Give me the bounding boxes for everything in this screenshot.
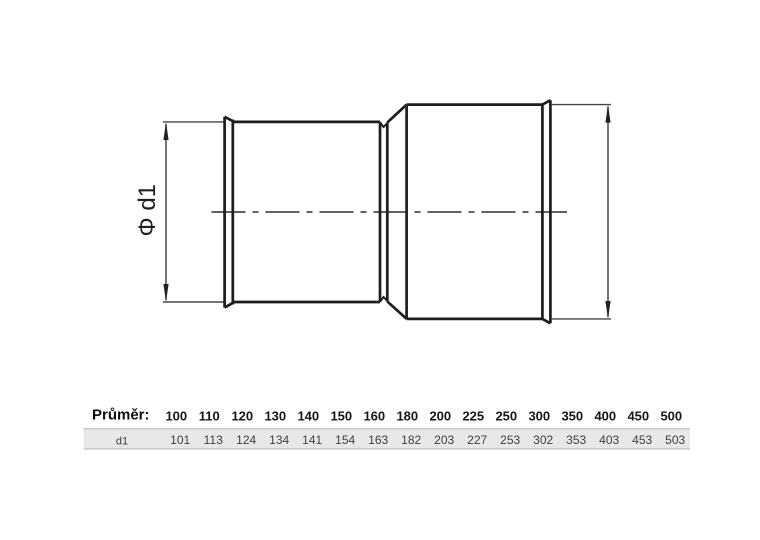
svg-text:160: 160: [363, 408, 385, 423]
svg-text:503: 503: [665, 433, 685, 447]
svg-text:140: 140: [297, 408, 319, 423]
svg-text:Φ d1: Φ d1: [134, 184, 161, 237]
svg-text:453: 453: [632, 433, 652, 447]
svg-text:403: 403: [599, 433, 619, 447]
svg-text:134: 134: [269, 433, 289, 447]
svg-text:163: 163: [368, 433, 388, 447]
svg-text:227: 227: [467, 433, 487, 447]
svg-text:120: 120: [231, 408, 253, 423]
svg-text:110: 110: [199, 408, 220, 423]
svg-text:253: 253: [500, 433, 520, 447]
svg-text:203: 203: [434, 433, 454, 447]
svg-text:101: 101: [170, 433, 190, 447]
svg-text:302: 302: [533, 433, 553, 447]
svg-text:182: 182: [401, 433, 421, 447]
svg-text:141: 141: [302, 433, 322, 447]
svg-text:d1: d1: [116, 435, 128, 447]
svg-text:154: 154: [335, 433, 355, 447]
svg-text:200: 200: [429, 408, 451, 423]
svg-text:250: 250: [495, 408, 517, 423]
svg-text:124: 124: [236, 433, 256, 447]
svg-text:150: 150: [330, 408, 352, 423]
svg-text:Průměr:: Průměr:: [92, 407, 150, 424]
svg-text:500: 500: [660, 408, 682, 423]
svg-text:100: 100: [165, 408, 187, 423]
svg-text:353: 353: [566, 433, 586, 447]
svg-text:130: 130: [264, 408, 286, 423]
svg-text:180: 180: [396, 408, 418, 423]
svg-text:300: 300: [528, 408, 550, 423]
svg-text:225: 225: [462, 408, 484, 423]
svg-text:350: 350: [561, 408, 583, 423]
svg-text:400: 400: [594, 408, 616, 423]
svg-text:450: 450: [627, 408, 649, 423]
svg-text:113: 113: [204, 433, 223, 447]
